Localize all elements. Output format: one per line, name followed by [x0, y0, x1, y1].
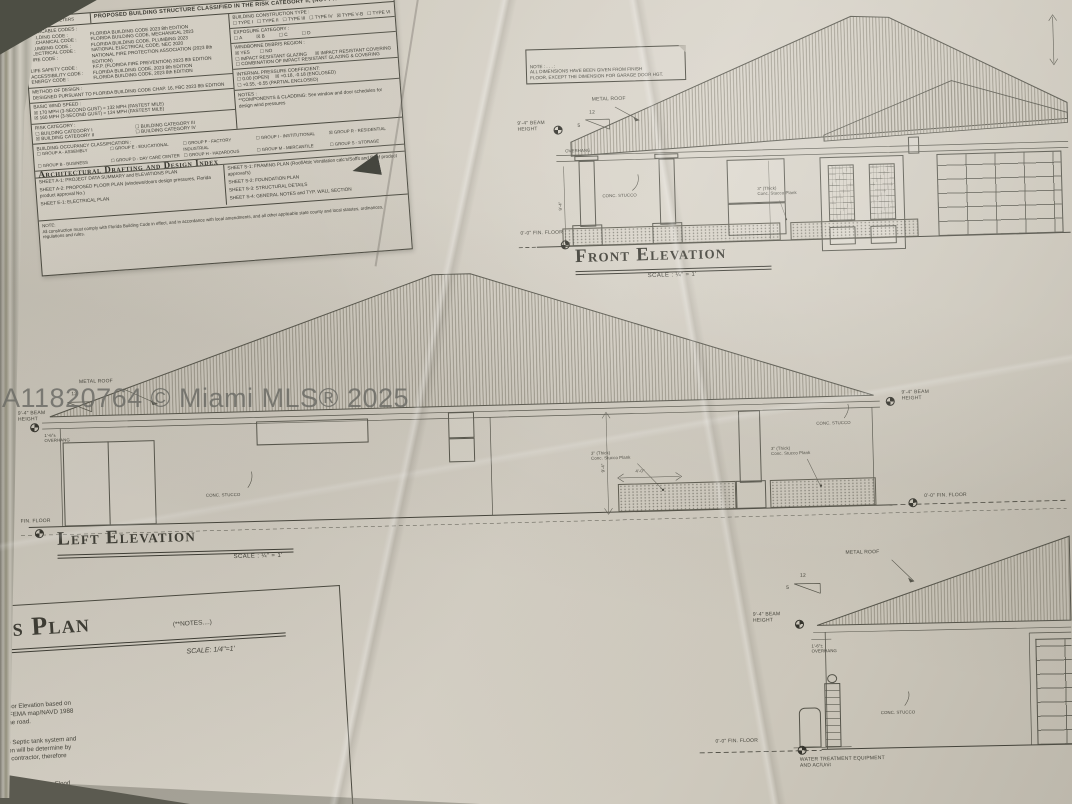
side-vent-window — [908, 137, 919, 154]
exposure-option: ☐ D — [301, 30, 310, 36]
fin-floor-label: FIN. FLOOR — [21, 519, 51, 526]
rear-column — [738, 410, 762, 483]
garage-door — [936, 151, 1063, 236]
roof-slope-rise: 5 — [577, 124, 580, 130]
front-note-text: NOTE : . . . : ALL DIMENSIONS HAVE BEEN … — [530, 63, 663, 80]
construction-option: ☐ TYPE III — [282, 15, 305, 22]
construction-option: ☐ TYPE IV — [309, 13, 333, 20]
stucco-plank-band — [790, 219, 918, 241]
metal-roof-label: METAL ROOF — [79, 379, 113, 386]
metal-roof-label: METAL ROOF — [845, 550, 879, 557]
roof-slope-run: 12 — [71, 392, 77, 398]
front-elevation-note-box: NOTE : . . . : ALL DIMENSIONS HAVE BEEN … — [525, 45, 686, 84]
main-roof-plane — [568, 10, 1068, 156]
transom-window — [256, 419, 369, 446]
exposure-option: ☐ C — [279, 32, 288, 38]
front-elevation-drawing: NOTE : . . . : ALL DIMENSIONS HAVE BEEN … — [512, 0, 1072, 283]
fin-floor-label: 0'-0" FIN. FLOOR — [715, 739, 758, 746]
stucco-plank-band — [618, 481, 737, 512]
small-window-upper — [448, 412, 475, 439]
exposure-option: ☐ A — [234, 35, 243, 41]
beam-height-label: 9'-4" BEAM HEIGHT — [18, 411, 48, 423]
entry-door-left-glass — [828, 164, 856, 221]
fin-floor-label: 0'-0" FIN. FLOOR — [520, 230, 563, 237]
rear-column-base — [736, 480, 767, 509]
porch-column — [658, 158, 676, 224]
stucco-plank-band — [770, 477, 877, 508]
roof-slope-run: 12 — [589, 111, 595, 117]
beam-dim-text: 9'-4" — [558, 202, 563, 211]
porch-column — [578, 161, 596, 227]
design-parameters-sheet: DESIGN PARAMETERS PROPOSED BUILDING STRU… — [23, 0, 413, 276]
entry-door-right-glass — [869, 163, 897, 220]
beam-height-label: 9'-4" BEAM HEIGHT — [517, 121, 557, 134]
plank-width-dim: 4'-0" — [635, 468, 644, 473]
overhang-label: 1'-6"± OVERHANG — [811, 643, 837, 654]
small-window-lower — [449, 438, 476, 463]
water-treatment-tank — [799, 707, 822, 747]
construction-option: ☐ TYPE I — [233, 19, 254, 26]
beam-dim-text: 9'-4" — [600, 464, 605, 473]
overhang-label: 1'-6"± OVERHANG — [44, 432, 70, 443]
construction-option: ☐ TYPE II — [257, 17, 279, 24]
left-elevation-scale: SCALE : ¼" = 1' — [234, 553, 283, 560]
conc-stucco-label: CONC. STUCCO — [602, 192, 637, 198]
note-dogear-icon — [678, 45, 685, 52]
left-elevation-drawing: METAL ROOF 12 1'-6"± OVERHANG 9'-4" BEAM… — [14, 248, 1068, 581]
left-elevation-title: Left Elevation — [57, 525, 196, 551]
beam-height-label: 9'-4" BEAM HEIGHT — [901, 390, 941, 403]
beam-height-label: 9'-4" BEAM HEIGHT — [753, 612, 793, 624]
roof-slope-rise: 5 — [786, 586, 789, 592]
water-treatment-unit — [824, 683, 841, 747]
stucco-plank-label: 3" (Thick) Conc. Stucco Plank — [771, 445, 811, 456]
construction-option: ☐ TYPE VI — [367, 9, 391, 16]
fin-floor-label: 0'-0" FIN. FLOOR — [924, 493, 967, 500]
elevations-plan-notes-sheet: ations Plan (**NOTES....) SCALE: 1/4"=1'… — [0, 584, 373, 804]
blueprint-photo: NOTE : . . . : ALL DIMENSIONS HAVE BEEN … — [0, 0, 1072, 804]
roof-slope-run: 12 — [800, 574, 806, 580]
metal-roof-label: METAL ROOF — [592, 97, 626, 104]
construction-option: ☒ TYPE V-B — [336, 11, 363, 19]
conc-stucco-label: CONC. STUCCO — [816, 420, 851, 426]
partial-elevation-drawing: METAL ROOF 12 5 9'-4" BEAM HEIGHT 1'-6"±… — [695, 534, 1072, 804]
overhang-label: OVERHANG — [565, 148, 591, 154]
conc-stucco-label: CONC. STUCCO — [881, 709, 915, 715]
exposure-option: ☒ B — [256, 33, 265, 39]
garage-door-partial — [1035, 638, 1072, 745]
front-window-upper-pane — [726, 158, 785, 204]
left-roof-plane — [46, 263, 873, 417]
conc-stucco-label: CONC. STUCCO — [206, 492, 241, 498]
stucco-plank-label: 3" (Thick) Conc. Stucco Plank — [591, 450, 631, 461]
stucco-plank-label: 3" (Thick) Conc. Stucco Plank — [757, 185, 797, 196]
